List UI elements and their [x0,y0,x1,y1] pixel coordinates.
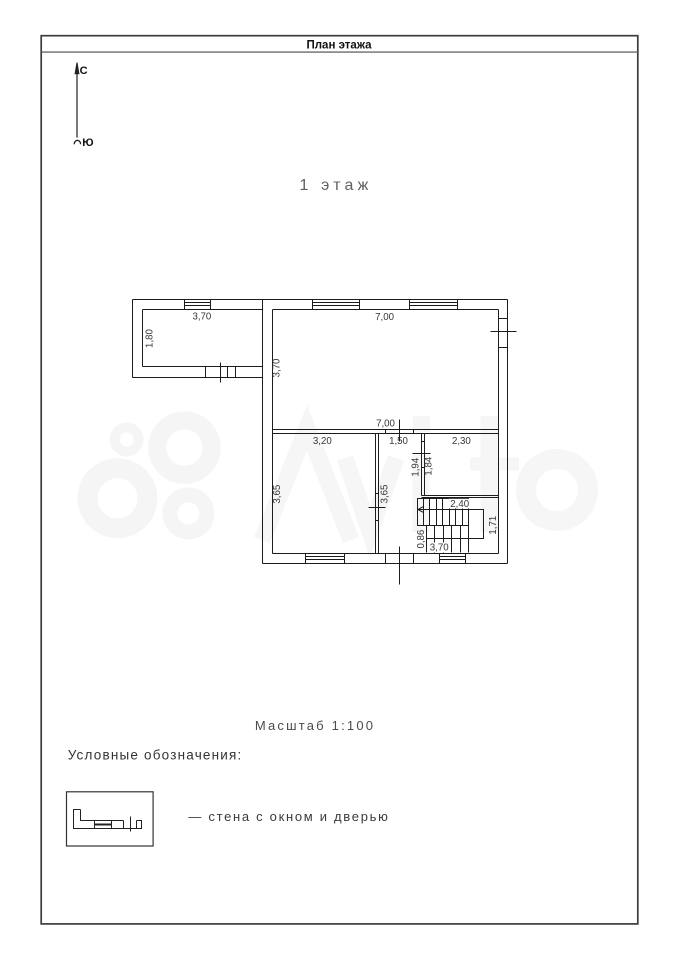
svg-text:План этажа: План этажа [306,39,372,51]
svg-text:1,50: 1,50 [389,436,408,447]
svg-text:3,70: 3,70 [430,543,449,554]
svg-text:1,71: 1,71 [488,516,499,535]
svg-text:1 этаж: 1 этаж [299,177,372,194]
svg-text:2,40: 2,40 [450,499,469,510]
svg-text:3,20: 3,20 [313,436,332,447]
svg-text:— стена с окном и дверью: — стена с окном и дверью [188,809,389,824]
svg-text:Ю: Ю [82,137,93,149]
svg-text:7,00: 7,00 [375,312,394,323]
svg-text:2,30: 2,30 [452,436,471,447]
svg-text:С: С [80,65,88,77]
svg-text:1,84: 1,84 [423,456,434,475]
svg-text:Масштаб 1:100: Масштаб 1:100 [255,718,375,733]
svg-text:3,65: 3,65 [272,485,283,504]
svg-text:0,86: 0,86 [416,530,427,549]
svg-text:Условные обозначения:: Условные обозначения: [68,748,243,763]
svg-text:7,00: 7,00 [376,418,395,429]
svg-text:3,65: 3,65 [379,485,390,504]
svg-text:1,94: 1,94 [411,457,422,476]
svg-text:1,80: 1,80 [145,328,156,347]
svg-text:3,70: 3,70 [192,312,211,323]
svg-text:3,70: 3,70 [272,358,283,377]
